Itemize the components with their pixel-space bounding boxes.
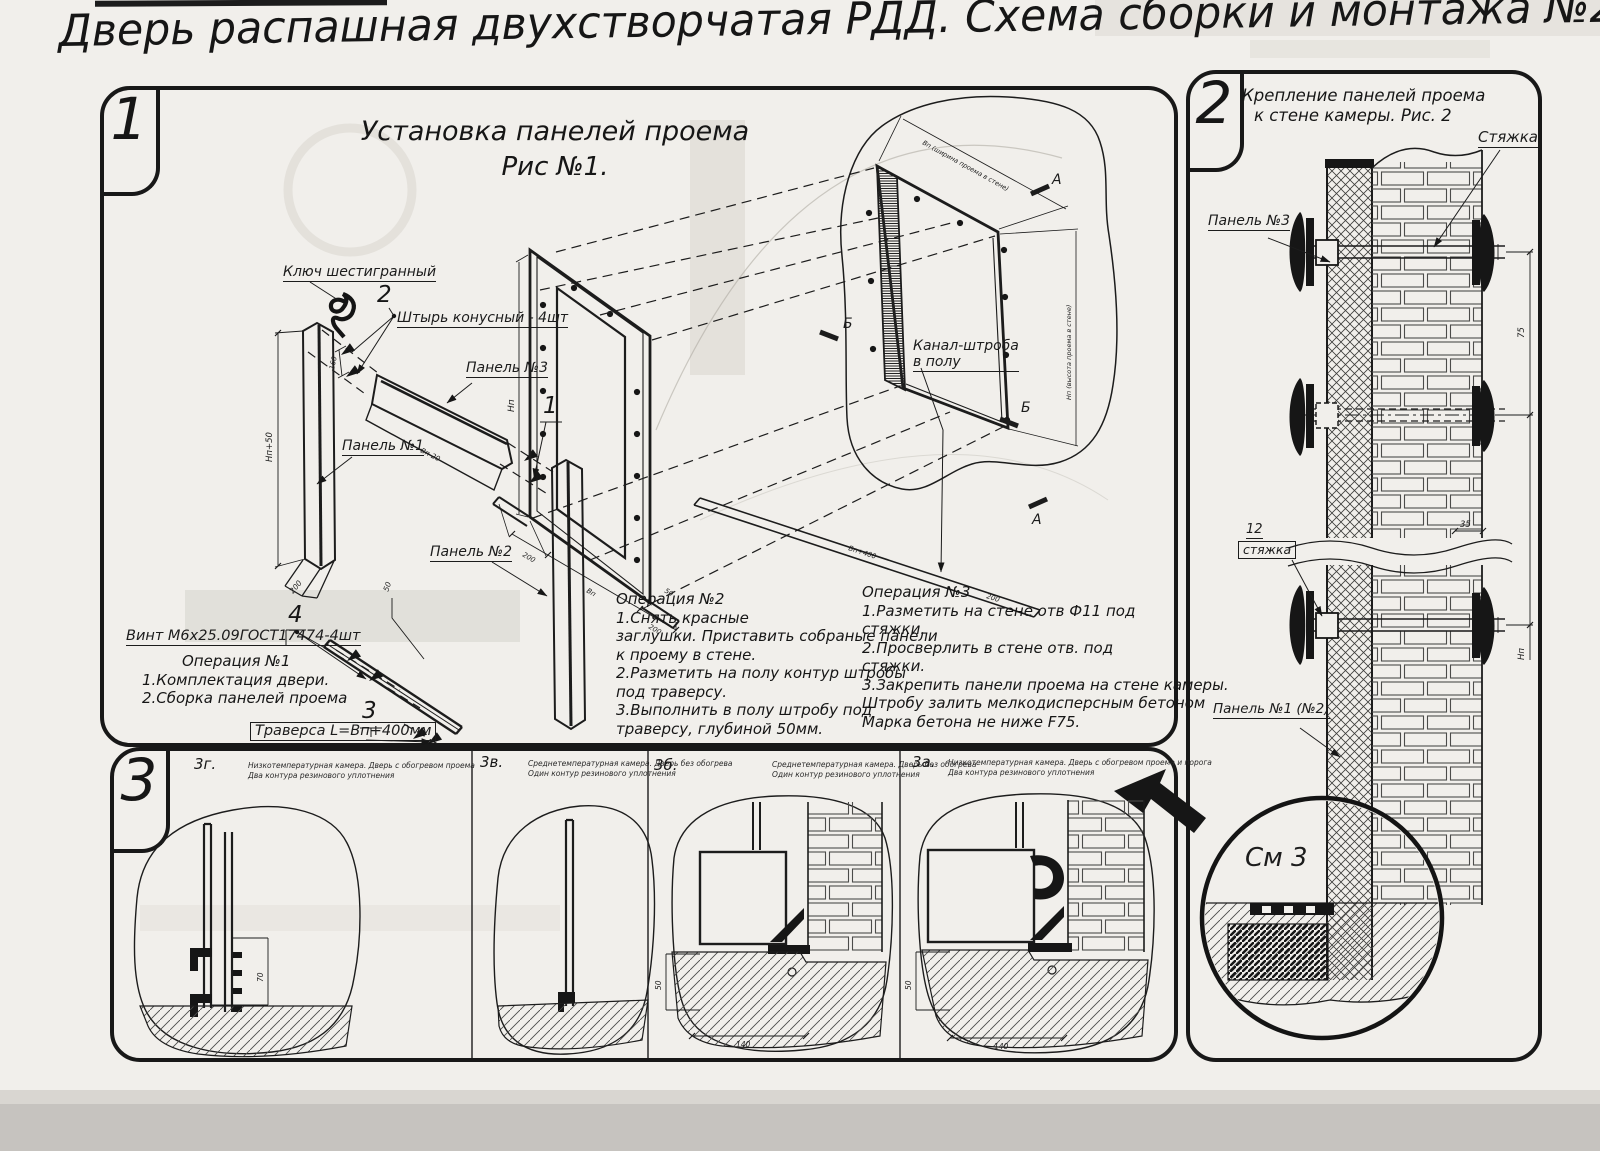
label-panel-3: Панель №3 [466,360,548,378]
dim-70: 70 [256,972,265,982]
s1-left-dims: Нп+50 200 160 Вп-20 50 [265,355,442,595]
dim-vp400: Вп+400 [847,544,877,561]
detail-3b-caption-line1: Среднетемпературная камера. Дверь без об… [772,760,977,770]
detail-3v-caption-line2: Один контур резинового уплотнения [528,769,733,779]
s2-title-line2: к стене камеры. Рис. 2 [1254,106,1452,125]
label-cone-pin: Штырь конусный - 4шт [397,310,568,328]
section-mark-b-right: Б [1021,400,1031,416]
dim-opening-height: Нп (высота проема в стене) [1065,305,1073,400]
label-tie: Стяжка [1478,128,1538,148]
label-tie-word: стяжка [1238,541,1296,559]
detail-3b-caption: Среднетемпературная камера. Дверь без об… [772,760,977,779]
dim-200-left: 200 [521,551,537,565]
op3-title: Операция №3 [862,583,1229,602]
label-see-3: См 3 [1245,843,1308,873]
detail-3g-caption-line2: Два контура резинового уплотнения [248,771,475,781]
detail-3a-caption-line1: Низкотемпературная камера. Дверь с обогр… [948,758,1212,768]
label-channel: Канал-штроба в полу [913,338,1019,372]
callout-2: 2 [377,282,392,308]
label-tie-number: 12 [1246,522,1263,539]
operation-1: Операция №1 1.Комплектация двери. 2.Сбор… [142,652,347,708]
detail-3a-caption-line2: Два контура резинового уплотнения [948,768,1212,778]
dim-np-s2: Нп [1517,648,1527,660]
detail-3b-caption-line2: Один контур резинового уплотнения [772,770,977,780]
label-panel-1-2: Панель №1 (№2) [1213,701,1330,719]
label-channel-line1: Канал-штроба [913,338,1019,354]
label-panel-3-s2: Панель №3 [1208,213,1290,231]
op1-line1: 1.Комплектация двери. [142,671,347,690]
dim-np50: Нп+50 [265,432,275,462]
callout-1: 1 [543,393,558,419]
detail-3a-id: 3а. [912,753,936,771]
s1-title-line1: Установка панелей проема [330,116,780,147]
label-panel-1: Панель №1 [342,438,424,456]
section-mark-b-left: Б [843,316,853,332]
op3-line6: Штробу залить мелкодисперсным бетоном [862,694,1229,713]
scan-strip-dark [0,1104,1600,1151]
op3-line1: 1.Разметить на стене отв Ф11 под [862,602,1229,621]
s3-group [134,750,1154,1058]
s2-title-line1: Крепление панелей проема [1242,86,1485,105]
operation-3: Операция №3 1.Разметить на стене отв Ф11… [862,583,1229,731]
dim-vp: Вп [585,587,597,599]
op3-line4: стяжки. [862,657,1229,676]
label-hex-key: Ключ шестигранный [283,264,436,282]
dim-140-3b: 140 [736,1040,751,1049]
dim-50-3b: 50 [654,980,663,990]
op3-line3: 2.Просверлить в стене отв. под [862,639,1229,658]
label-panel-2: Панель №2 [430,544,512,562]
callout-4: 4 [288,602,303,628]
section-mark-a-top: А [1051,172,1062,188]
s1-title-line2: Рис №1. [330,152,780,182]
drawing-layer: Нп+50 200 160 Вп-20 50 [0,0,1600,1151]
label-screw: Винт М6х25.09ГОСТ17474-4шт [126,628,361,646]
dim-140-3a: 140 [994,1042,1009,1051]
callout-3: 3 [362,698,377,724]
detail-3v-caption: Среднетемпературная камера. Дверь без об… [528,759,733,778]
dim-opening-width: Вп (ширина проема в стене) [921,139,1010,193]
op1-title: Операция №1 [182,652,347,671]
op3-line7: Марка бетона не ниже F75. [862,713,1229,732]
detail-3b-id: 3б. [654,756,678,774]
detail-3g-caption: Низкотемпературная камера. Дверь с обогр… [248,761,475,780]
dim-160: 160 [328,355,339,370]
dim-50-3a: 50 [904,980,913,990]
op3-line2: стяжки. [862,620,1229,639]
detail-3g-id: 3г. [194,755,216,773]
op3-line5: 3.Закрепить панели проема на стене камер… [862,676,1229,695]
dim-35: 35 [1460,520,1471,530]
detail-3v-id: 3в. [480,753,503,771]
detail-3g-caption-line1: Низкотемпературная камера. Дверь с обогр… [248,761,475,771]
section-mark-a-bottom: А [1031,512,1042,528]
dim-np-frame: Нп [507,399,517,412]
detail-3v-caption-line1: Среднетемпературная камера. Дверь без об… [528,759,733,769]
detail-3a-caption: Низкотемпературная камера. Дверь с обогр… [948,758,1212,777]
label-channel-line2: в полу [913,354,1019,370]
op1-line2: 2.Сборка панелей проема [142,689,347,708]
label-traverse: Траверса L=Вп+400мм [250,722,436,741]
dim-75: 75 [1517,327,1527,338]
drawing-sheet: Дверь распашная двухстворчатая РДД. Схем… [0,0,1600,1151]
scan-strip-light [0,1090,1600,1104]
